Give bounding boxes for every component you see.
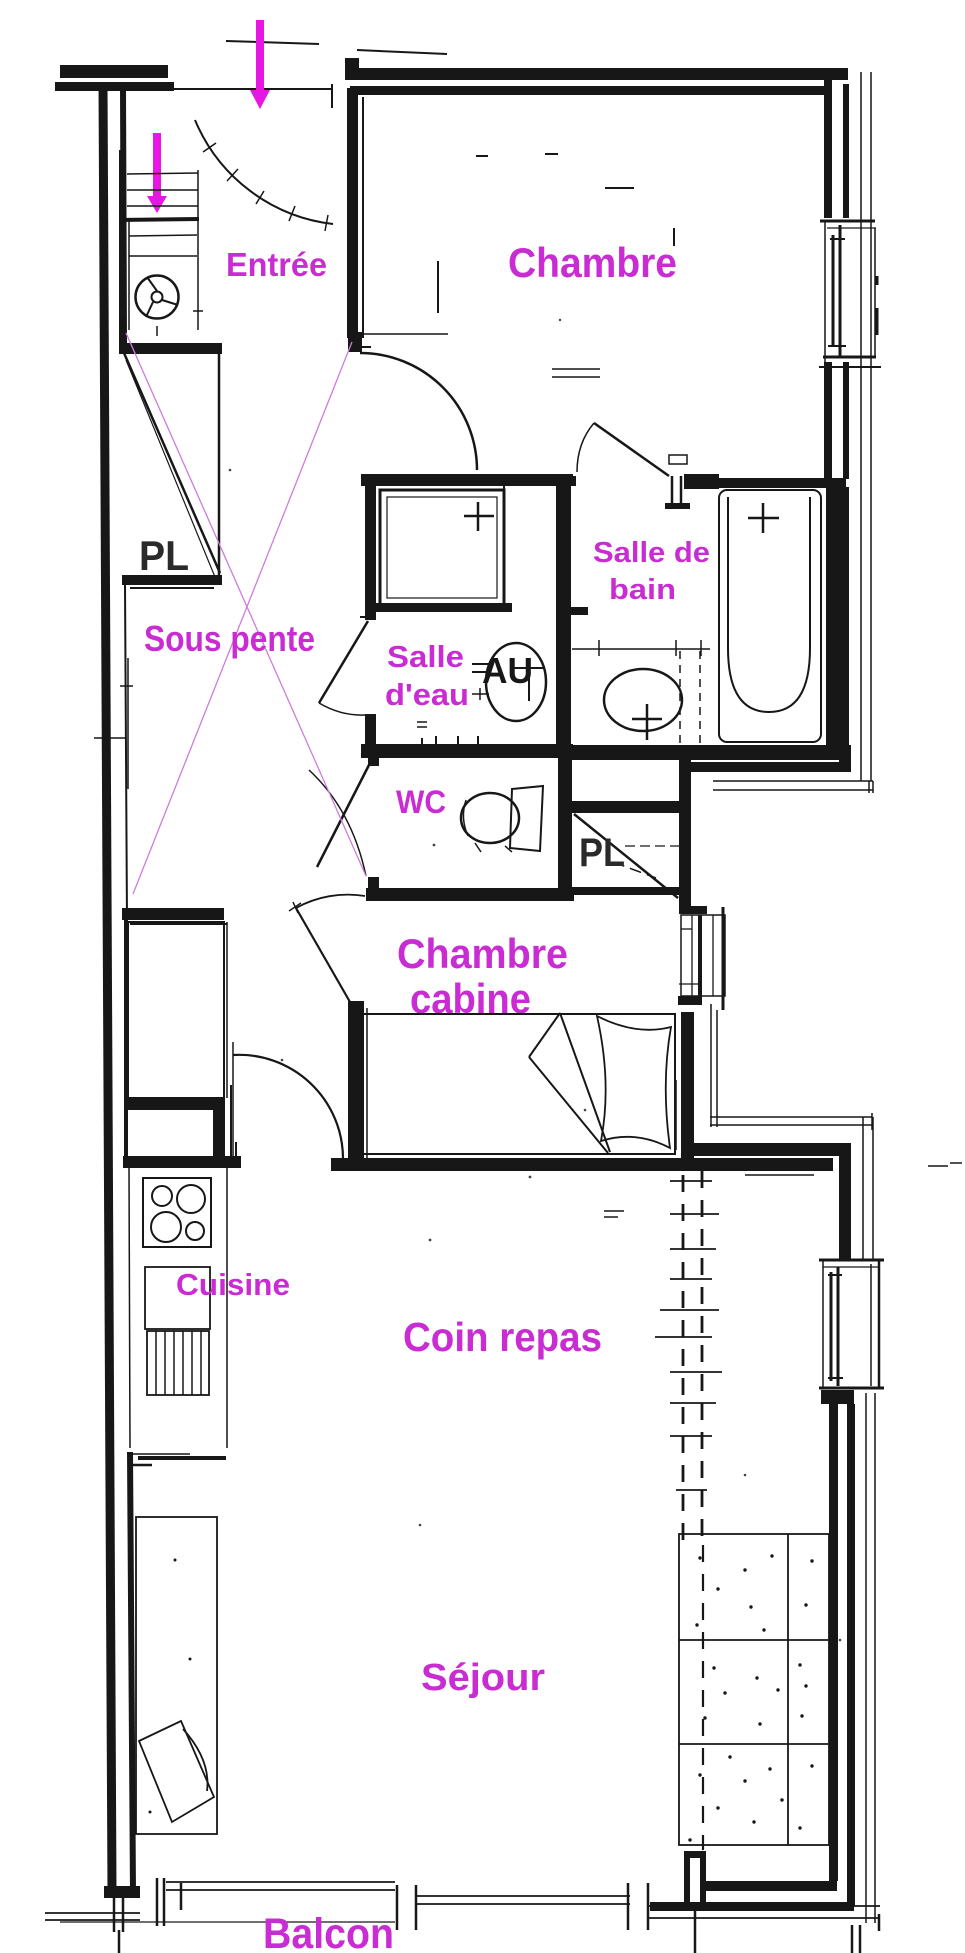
- svg-text:Cuisine: Cuisine: [176, 1267, 290, 1302]
- svg-text:Séjour: Séjour: [421, 1657, 545, 1699]
- svg-text:d'eau: d'eau: [385, 677, 469, 712]
- svg-text:AU: AU: [482, 650, 533, 691]
- svg-text:Entrée: Entrée: [226, 246, 327, 283]
- svg-text:PL: PL: [139, 532, 189, 579]
- svg-text:Salle: Salle: [387, 639, 464, 674]
- svg-text:Coin repas: Coin repas: [403, 1314, 602, 1360]
- svg-text:bain: bain: [609, 574, 676, 606]
- svg-text:Chambre: Chambre: [397, 930, 568, 977]
- svg-text:Chambre: Chambre: [508, 239, 677, 286]
- svg-text:Salle de: Salle de: [593, 537, 710, 569]
- svg-text:Balcon: Balcon: [263, 1910, 394, 1953]
- svg-text:WC: WC: [396, 784, 446, 820]
- svg-text:Sous pente: Sous pente: [144, 618, 315, 659]
- svg-text:PL: PL: [579, 831, 625, 875]
